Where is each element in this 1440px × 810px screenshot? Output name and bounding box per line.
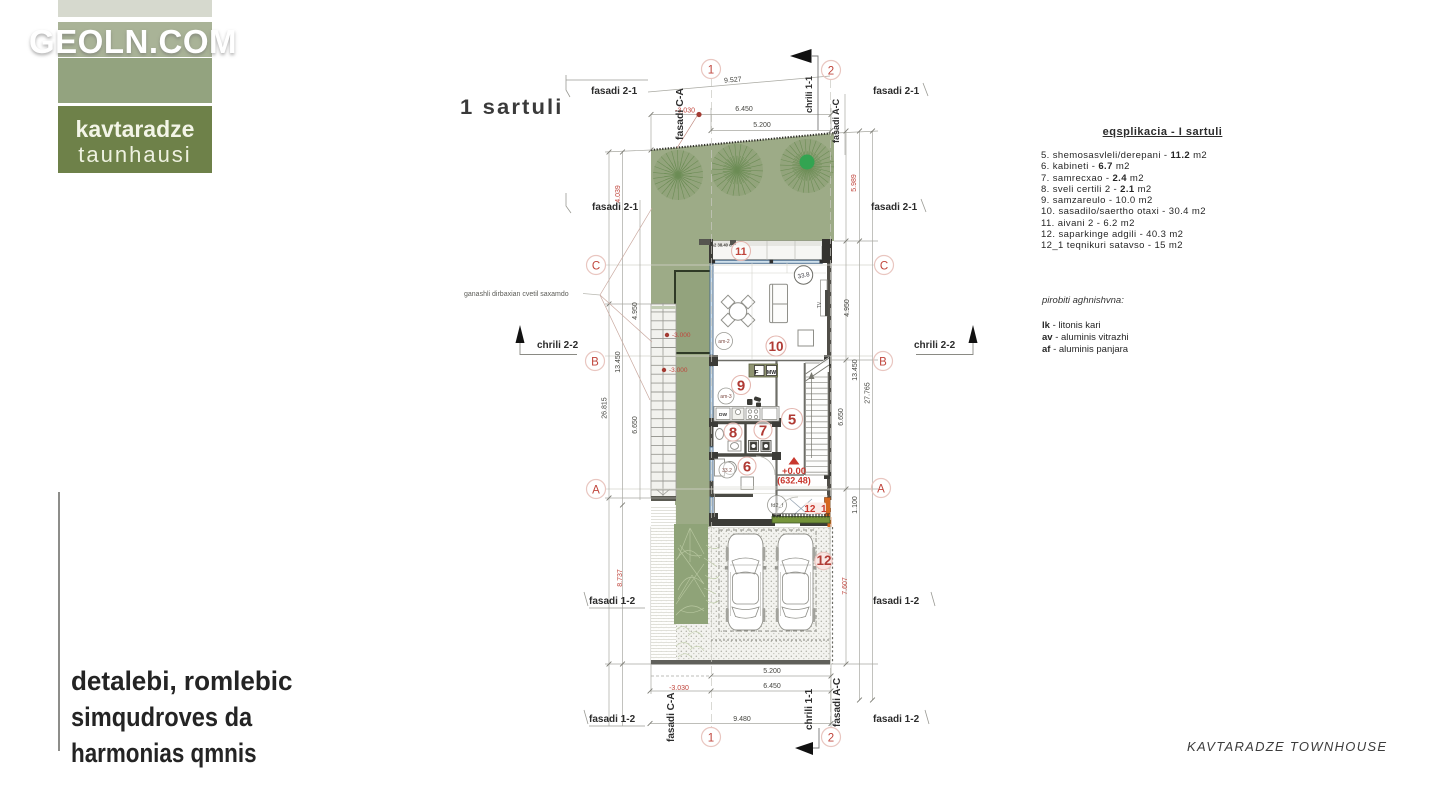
svg-text:6: 6: [743, 458, 751, 475]
svg-text:C: C: [880, 261, 888, 273]
svg-text:6.450: 6.450: [763, 683, 781, 690]
svg-text:11: 11: [735, 246, 747, 258]
svg-text:12: 12: [816, 553, 831, 568]
svg-text:fasadi 2-1: fasadi 2-1: [591, 86, 638, 97]
svg-text:5.200: 5.200: [753, 122, 771, 129]
svg-text:12_1: 12_1: [804, 504, 827, 515]
svg-text:9: 9: [737, 377, 745, 394]
svg-text:fasadi 1-2: fasadi 1-2: [873, 714, 920, 725]
svg-text:1.100: 1.100: [852, 496, 859, 514]
svg-text:-3.000: -3.000: [669, 367, 688, 374]
svg-text:B: B: [879, 357, 887, 369]
svg-text:am-2: am-2: [718, 339, 730, 345]
svg-text:fasadi C-A: fasadi C-A: [666, 693, 677, 742]
svg-text:B: B: [591, 357, 599, 369]
svg-text:2: 2: [828, 66, 834, 78]
svg-text:-3.030: -3.030: [669, 685, 689, 692]
svg-text:fasadi C-A: fasadi C-A: [674, 88, 686, 140]
svg-text:-3.000: -3.000: [672, 332, 691, 339]
svg-text:8: 8: [729, 424, 737, 441]
svg-text:MW: MW: [767, 370, 776, 376]
svg-text:6.650: 6.650: [838, 408, 845, 426]
svg-text:6.650: 6.650: [632, 416, 639, 434]
svg-text:4.950: 4.950: [844, 299, 851, 317]
svg-text:fasadi 1-2: fasadi 1-2: [873, 596, 920, 607]
svg-text:chrili 2-2: chrili 2-2: [914, 340, 956, 351]
svg-text:6.450: 6.450: [735, 106, 753, 113]
svg-text:9.480: 9.480: [733, 716, 751, 723]
svg-text:A: A: [877, 484, 885, 496]
svg-text:7.607: 7.607: [842, 577, 849, 595]
svg-text:fasadi 2-1: fasadi 2-1: [592, 202, 639, 213]
svg-text:fasadi 2-1: fasadi 2-1: [871, 202, 918, 213]
svg-text:fasadi A-C: fasadi A-C: [832, 678, 843, 727]
svg-text:chrili 1-1: chrili 1-1: [804, 688, 815, 730]
svg-text:2: 2: [828, 733, 834, 745]
svg-text:ganashli dirbaxian cvetil saxa: ganashli dirbaxian cvetil saxamdo: [464, 291, 569, 298]
svg-text:DW: DW: [719, 412, 727, 418]
svg-text:1: 1: [708, 65, 714, 77]
svg-text:7: 7: [759, 422, 767, 439]
svg-text:fasadi 1-2: fasadi 1-2: [589, 596, 636, 607]
svg-text:8.737: 8.737: [617, 569, 624, 587]
svg-text:A2 38.40 d: A2 38.40 d: [711, 243, 732, 248]
svg-text:(632.48): (632.48): [777, 476, 811, 486]
svg-text:C: C: [592, 261, 600, 273]
svg-text:fasadi 2-1: fasadi 2-1: [873, 86, 920, 97]
svg-text:fd2_f: fd2_f: [771, 503, 784, 509]
svg-text:chrili 1-1: chrili 1-1: [804, 76, 814, 113]
svg-text:1: 1: [708, 733, 714, 745]
svg-text:5: 5: [788, 411, 796, 428]
svg-text:fasadi 1-2: fasadi 1-2: [589, 714, 636, 725]
svg-text:26.815: 26.815: [602, 397, 609, 419]
svg-text:fasadi A-C: fasadi A-C: [831, 98, 841, 143]
svg-text:13.450: 13.450: [852, 359, 859, 381]
svg-text:4.039: 4.039: [615, 185, 622, 203]
svg-text:9.527: 9.527: [724, 76, 742, 85]
svg-text:TV: TV: [817, 301, 823, 308]
svg-text:A: A: [592, 485, 600, 497]
svg-text:am-3: am-3: [720, 394, 732, 400]
svg-text:chrili 2-2: chrili 2-2: [537, 340, 579, 351]
svg-text:27.765: 27.765: [865, 382, 872, 404]
svg-text:F: F: [755, 370, 759, 377]
svg-text:33.2: 33.2: [722, 468, 732, 474]
svg-text:13.450: 13.450: [615, 351, 622, 373]
svg-text:5.989: 5.989: [851, 174, 858, 192]
svg-text:10: 10: [768, 339, 783, 354]
svg-text:5.200: 5.200: [763, 668, 781, 675]
svg-text:4.950: 4.950: [632, 302, 639, 320]
